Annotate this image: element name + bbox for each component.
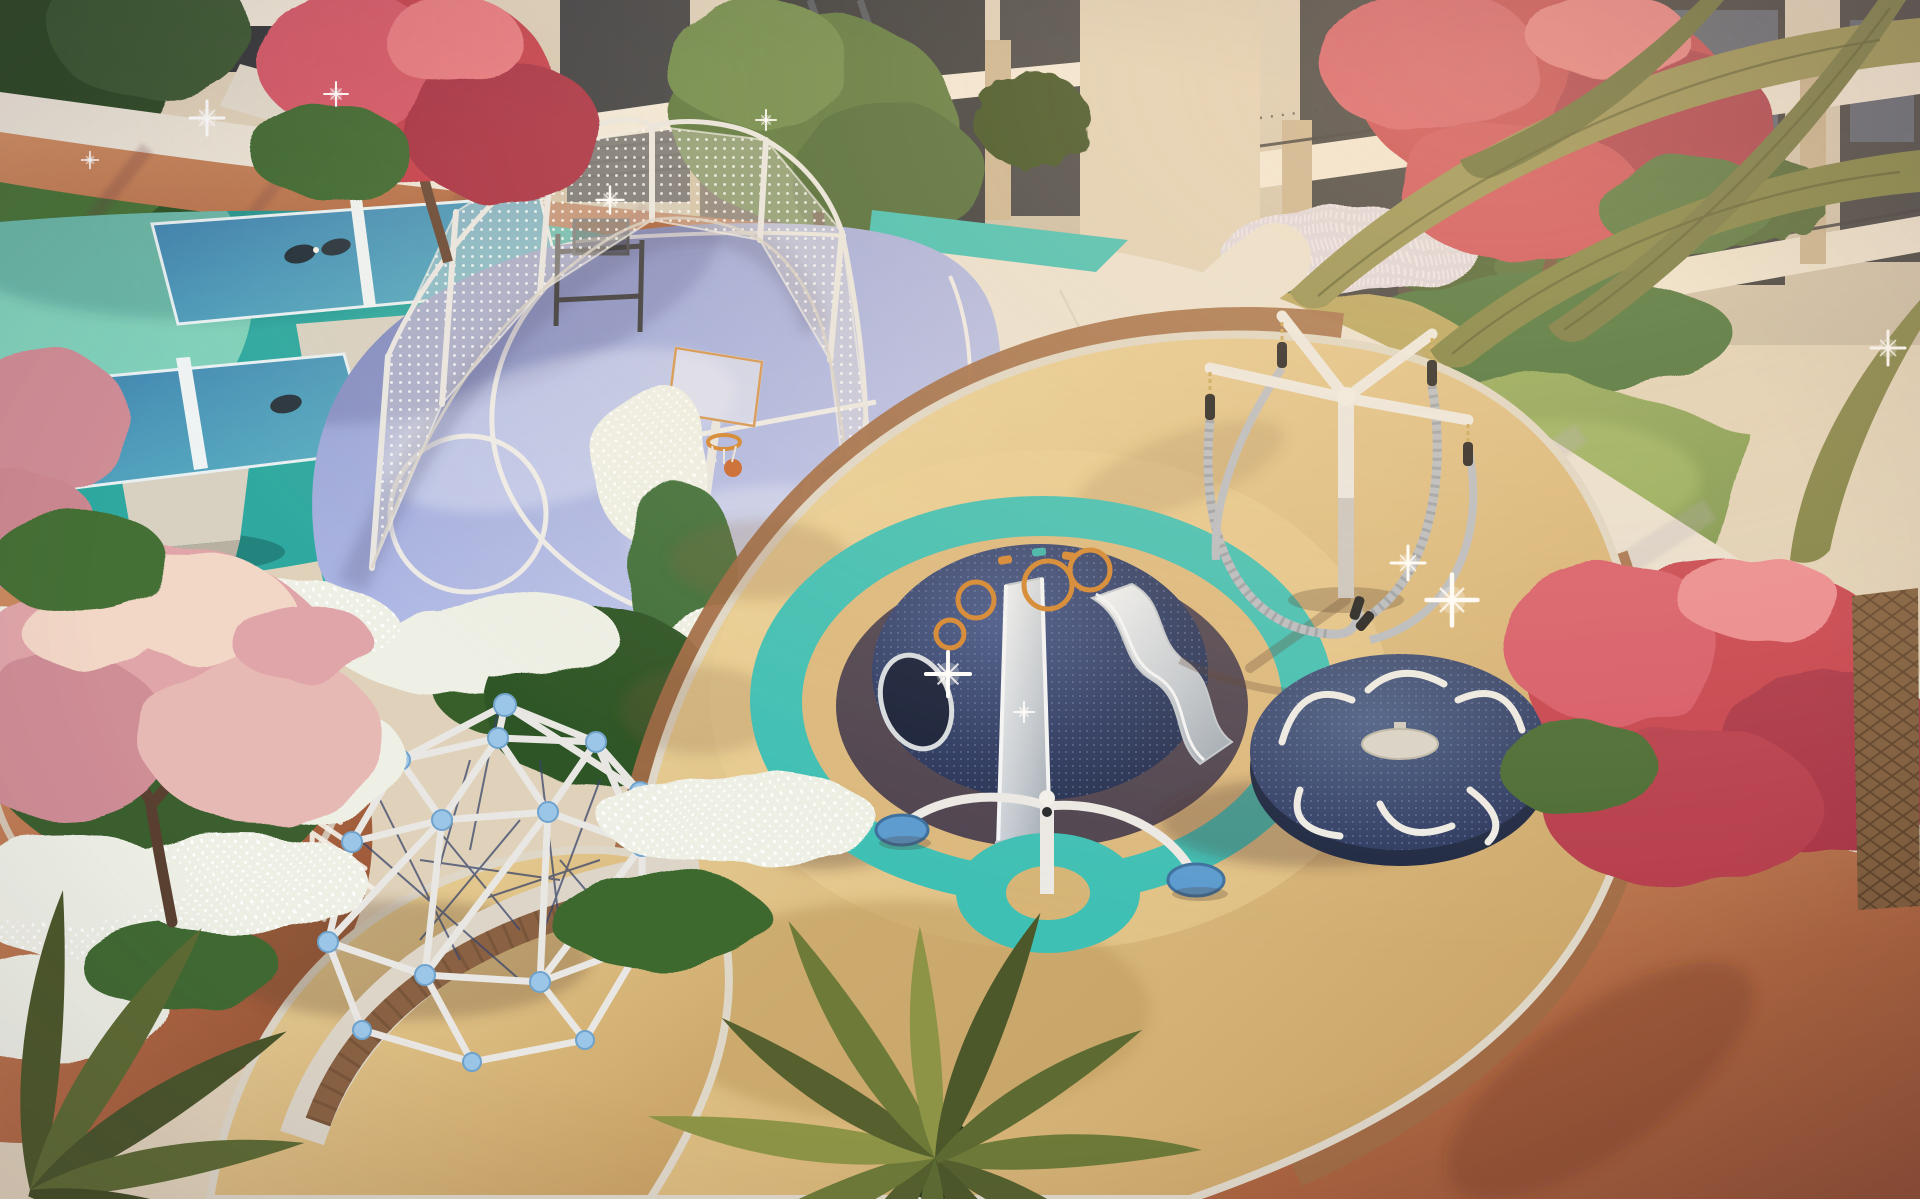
vignette-overlay — [0, 0, 1920, 1199]
community-park-render: Aerial golden-hour 3D rendering of a res… — [0, 0, 1920, 1199]
render-viewport: Aerial golden-hour 3D rendering of a res… — [0, 0, 1920, 1199]
